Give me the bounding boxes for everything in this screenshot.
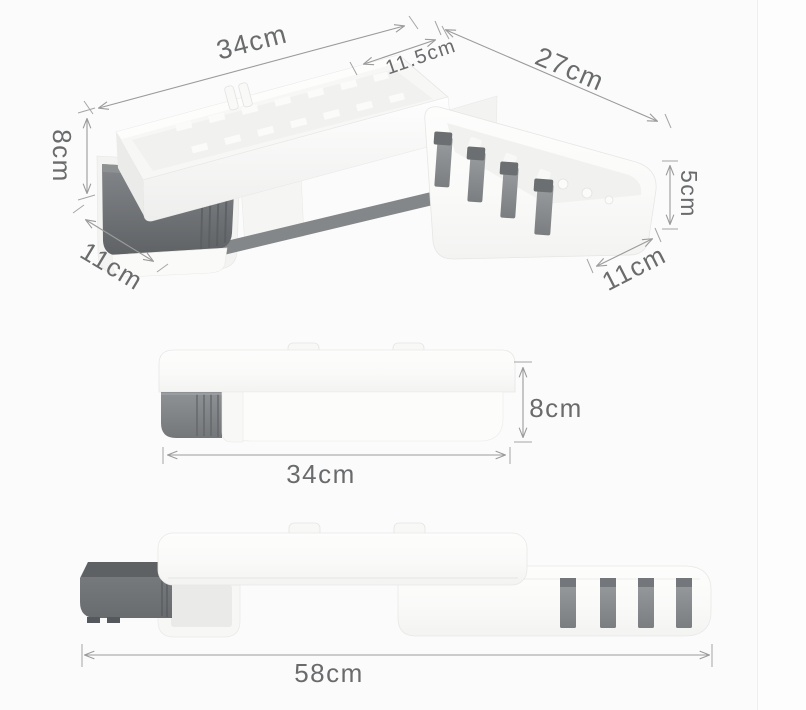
peg [582,188,592,198]
peg [558,179,568,189]
shelf-body [228,392,503,441]
drawer [161,392,222,438]
dim-label: 34cm [286,459,356,489]
shelf-rim [159,350,515,392]
drawer-foot [107,617,120,623]
dimension-diagram-canvas: 34cm 11.5cm 27cm 8cm 11cm 5cm [0,0,806,710]
peg [605,196,613,204]
dim-label: 8cm [47,129,77,183]
drawer-foot [87,617,100,623]
dim-label: 58cm [294,658,364,688]
background-right-strip [758,0,806,710]
product-front-closed-illustration [159,343,515,442]
product-dimensions-figure: 34cm 11.5cm 27cm 8cm 11cm 5cm [0,0,806,710]
dim-label: 5cm [676,170,702,218]
bracket-recess [171,585,232,627]
dim-label: 8cm [529,393,583,423]
support-bracket [222,392,243,442]
